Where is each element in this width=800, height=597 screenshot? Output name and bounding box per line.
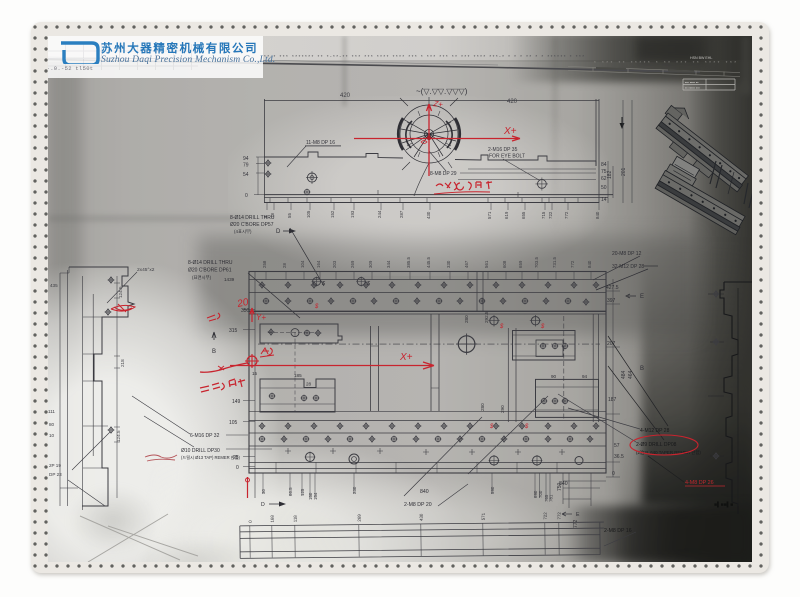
svg-text:75: 75 <box>601 169 607 175</box>
svg-text:111: 111 <box>48 409 55 414</box>
svg-text:840: 840 <box>420 489 429 495</box>
svg-text:E: E <box>576 512 580 518</box>
svg-text:14: 14 <box>601 197 607 203</box>
svg-text:(드릴시 Ø13 TAP) REMER 한함): (드릴시 Ø13 TAP) REMER 한함) <box>181 454 241 460</box>
svg-text:280: 280 <box>464 315 469 323</box>
svg-text:397: 397 <box>607 298 616 304</box>
svg-text:94: 94 <box>582 374 588 379</box>
svg-text:4-M8 DP 26: 4-M8 DP 26 <box>685 480 714 486</box>
svg-text:385.5: 385.5 <box>406 256 411 268</box>
svg-text:772: 772 <box>570 260 575 268</box>
svg-text:62: 62 <box>601 176 607 182</box>
svg-text:420: 420 <box>507 99 518 105</box>
svg-text:118: 118 <box>293 515 298 523</box>
svg-text:32-M12 DP 28: 32-M12 DP 28 <box>612 264 644 270</box>
svg-text:840: 840 <box>587 260 592 268</box>
svg-text:D: D <box>276 229 281 235</box>
svg-text:330: 330 <box>446 260 451 268</box>
svg-text:B: B <box>640 366 644 372</box>
svg-text:▪▪▪ ▪▪▪▪ ▪▪: ▪▪▪ ▪▪▪▪ ▪▪ <box>685 81 698 85</box>
svg-text:608: 608 <box>502 260 507 268</box>
svg-text:840: 840 <box>595 211 600 219</box>
svg-text:344: 344 <box>386 260 391 268</box>
svg-text:2-M16 DP 35: 2-M16 DP 35 <box>488 147 518 153</box>
svg-text:484: 484 <box>621 370 627 379</box>
svg-text:427.5: 427.5 <box>606 285 619 291</box>
svg-text:125: 125 <box>300 488 305 496</box>
svg-text:309: 309 <box>368 260 373 268</box>
svg-text:781: 781 <box>549 494 554 502</box>
svg-text:X+: X+ <box>503 126 517 137</box>
svg-text:193: 193 <box>350 210 355 218</box>
svg-text:840: 840 <box>559 481 568 487</box>
svg-text:258: 258 <box>262 260 267 268</box>
svg-text:420: 420 <box>340 93 351 99</box>
svg-text:0: 0 <box>236 465 239 471</box>
svg-text:315: 315 <box>229 328 238 334</box>
svg-text:57: 57 <box>614 443 620 449</box>
svg-text:Y+: Y+ <box>256 313 266 322</box>
svg-text:84: 84 <box>601 162 607 168</box>
svg-text:464: 464 <box>628 370 634 379</box>
svg-text:700: 700 <box>538 490 543 498</box>
svg-text:$: $ <box>366 281 371 287</box>
svg-text:Z+: Z+ <box>432 99 444 109</box>
svg-text:290: 290 <box>500 405 505 413</box>
svg-text:571: 571 <box>481 512 486 520</box>
svg-text:430: 430 <box>426 211 431 219</box>
svg-text:435: 435 <box>50 283 58 288</box>
svg-text:50: 50 <box>601 185 607 191</box>
svg-text:280: 280 <box>480 403 485 411</box>
svg-text:772: 772 <box>564 211 569 219</box>
svg-text:30: 30 <box>261 489 266 494</box>
svg-text:0: 0 <box>245 193 248 199</box>
svg-text:164: 164 <box>316 260 321 268</box>
svg-text:80: 80 <box>49 422 55 427</box>
svg-text:Ø20 C'BORE DP61: Ø20 C'BORE DP61 <box>188 268 232 274</box>
svg-text:571: 571 <box>487 211 492 219</box>
svg-text:(4표시부): (4표시부) <box>234 229 252 235</box>
svg-text:FOR EYE BOLT: FOR EYE BOLT <box>489 154 525 160</box>
svg-text:~(▽.▽▽.▽▽▽): ~(▽.▽▽.▽▽▽) <box>416 87 468 96</box>
svg-text:201: 201 <box>621 167 627 176</box>
svg-text:619: 619 <box>504 211 509 219</box>
svg-text:292.5: 292.5 <box>484 311 489 323</box>
svg-text:▪▪ ▪▪▪▪▪ ▪▪▪: ▪▪ ▪▪▪▪▪ ▪▪▪ <box>685 86 700 90</box>
svg-text:269: 269 <box>350 260 355 268</box>
svg-text:124.5: 124.5 <box>116 430 121 442</box>
svg-text:36.5: 36.5 <box>614 454 624 460</box>
svg-text:590: 590 <box>490 486 495 494</box>
svg-text:■▌■■▌■: ■▌■■▌■ <box>714 501 733 508</box>
svg-text:185: 185 <box>294 373 302 378</box>
svg-text:655: 655 <box>521 211 526 219</box>
svg-text:105: 105 <box>306 210 311 218</box>
svg-text:445.5: 445.5 <box>426 256 431 268</box>
svg-text:561: 561 <box>484 260 489 268</box>
svg-text:DP 23: DP 23 <box>49 472 62 477</box>
svg-text:168: 168 <box>270 515 275 523</box>
svg-text:66.5: 66.5 <box>288 487 293 496</box>
svg-text:$: $ <box>499 324 504 330</box>
svg-text:2-Ø9 DRILL DP08: 2-Ø9 DRILL DP08 <box>636 442 677 448</box>
svg-text:E: E <box>640 294 644 300</box>
svg-text:244: 244 <box>377 210 382 218</box>
svg-text:20-M8 DP 12: 20-M8 DP 12 <box>612 251 642 257</box>
svg-text:2x45°x2: 2x45°x2 <box>137 267 155 273</box>
svg-text:2-M8 DP 16: 2-M8 DP 16 <box>604 528 632 534</box>
svg-text:187: 187 <box>608 397 617 403</box>
svg-text:104: 104 <box>300 260 305 268</box>
svg-text:287: 287 <box>399 210 404 218</box>
svg-text:$: $ <box>489 424 494 430</box>
svg-text:154: 154 <box>313 492 318 500</box>
svg-text:8-M8 DP 29: 8-M8 DP 29 <box>430 171 457 177</box>
svg-text:15: 15 <box>252 371 258 376</box>
svg-text:2P 19: 2P 19 <box>49 463 61 468</box>
svg-text:10: 10 <box>49 433 55 438</box>
svg-text:11-M8 DP 16: 11-M8 DP 16 <box>306 140 335 146</box>
svg-text:2-M8 DP 20: 2-M8 DP 20 <box>404 502 432 508</box>
svg-text:$: $ <box>314 304 319 310</box>
svg-text:Ø10 DRILL DP30: Ø10 DRILL DP30 <box>181 448 220 454</box>
svg-text:207: 207 <box>607 341 616 347</box>
svg-text:703.5: 703.5 <box>534 256 539 268</box>
svg-text:54: 54 <box>243 172 249 178</box>
svg-text:4-M12 DP 28: 4-M12 DP 28 <box>640 428 670 434</box>
svg-text:$: $ <box>321 281 326 287</box>
svg-text:(표면시부): (표면시부) <box>192 274 212 281</box>
svg-text:8-Ø14 DRILL THRU: 8-Ø14 DRILL THRU <box>230 215 275 221</box>
svg-text:722: 722 <box>543 512 548 520</box>
svg-text:731.5: 731.5 <box>552 256 557 268</box>
svg-text:230: 230 <box>352 486 357 494</box>
svg-text:149: 149 <box>232 399 241 405</box>
svg-text:8-Ø14 DRILL THRU: 8-Ø14 DRILL THRU <box>188 260 233 266</box>
svg-text:203: 203 <box>332 260 337 268</box>
svg-text:659: 659 <box>518 260 523 268</box>
svg-text:D: D <box>261 502 265 508</box>
svg-text:105: 105 <box>229 420 238 426</box>
svg-text:28: 28 <box>306 382 312 387</box>
svg-text:* *** ** ***** * ** *** ** ***: * *** ** ***** * ** *** ** **** *** <box>594 60 736 65</box>
svg-text:79: 79 <box>243 163 249 169</box>
svg-text:6-M16 DP 32: 6-M16 DP 32 <box>190 433 220 439</box>
svg-text:B: B <box>212 349 216 355</box>
svg-text:90: 90 <box>551 374 557 379</box>
svg-text:$: $ <box>524 424 529 430</box>
svg-text:1439: 1439 <box>224 277 235 282</box>
svg-text:772: 772 <box>557 512 562 520</box>
svg-text:430: 430 <box>419 513 424 521</box>
svg-text:218: 218 <box>120 359 125 367</box>
svg-text:55: 55 <box>287 213 292 218</box>
svg-text:467: 467 <box>464 260 469 268</box>
svg-text:X+: X+ <box>399 352 413 363</box>
svg-text:0: 0 <box>248 520 253 523</box>
svg-text:$: $ <box>540 324 545 330</box>
svg-text:0: 0 <box>612 471 615 477</box>
svg-text:124.5: 124.5 <box>118 286 123 298</box>
svg-text:152: 152 <box>330 210 335 218</box>
svg-text:94: 94 <box>243 156 249 162</box>
svg-text:715: 715 <box>541 211 546 219</box>
svg-text:772: 772 <box>573 519 579 528</box>
svg-text:Ø20 C'BORE DP57: Ø20 C'BORE DP57 <box>230 222 274 228</box>
svg-text:**-* *** ******* ** *-**-** **: **-* *** ******* ** *-**-** *** *** ****… <box>264 54 584 59</box>
svg-text:722: 722 <box>548 211 553 219</box>
svg-text:269: 269 <box>357 514 362 522</box>
svg-text:28: 28 <box>282 263 287 268</box>
